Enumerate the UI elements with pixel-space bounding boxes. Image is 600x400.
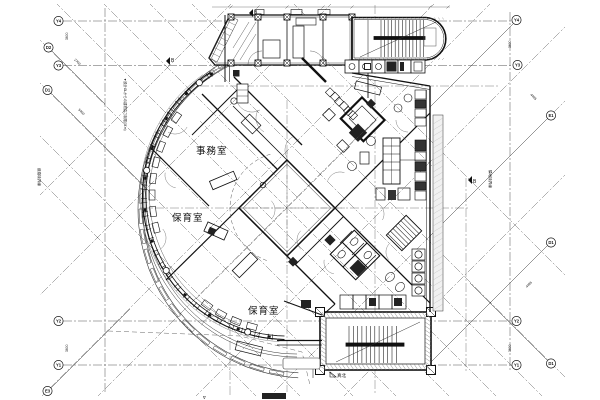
svg-text:保育室: 保育室	[248, 305, 280, 317]
svg-text:3600: 3600	[508, 344, 512, 352]
svg-text:3600: 3600	[508, 40, 512, 48]
svg-text:Y4: Y4	[514, 18, 520, 23]
svg-text:Y3: Y3	[515, 63, 521, 68]
svg-text:D1: D1	[45, 88, 51, 93]
svg-text:Y1: Y1	[514, 363, 520, 368]
svg-text:Y2: Y2	[56, 319, 62, 324]
svg-text:真北: 真北	[337, 372, 346, 379]
svg-text:D2: D2	[46, 45, 52, 50]
svg-text:E1: E1	[548, 113, 554, 118]
svg-text:隣地境界線: 隣地境界線	[488, 170, 493, 188]
svg-text:∇: ∇	[202, 395, 206, 400]
svg-text:Y3: Y3	[56, 63, 62, 68]
svg-text:3600: 3600	[65, 344, 69, 352]
svg-text:Y1: Y1	[56, 363, 62, 368]
svg-text:3600: 3600	[65, 32, 69, 40]
svg-text:道路境界線: 道路境界線	[37, 168, 42, 186]
svg-text:保育室: 保育室	[172, 212, 204, 224]
svg-text:▼設計GLからの建物高さ制限(31m): ▼設計GLからの建物高さ制限(31m)	[123, 78, 128, 131]
svg-text:D1: D1	[548, 240, 554, 245]
svg-text:D1: D1	[548, 361, 554, 366]
svg-text:事務室: 事務室	[196, 145, 228, 157]
svg-text:E3: E3	[45, 389, 51, 394]
svg-text:Y2: Y2	[514, 319, 520, 324]
svg-text:Y4: Y4	[56, 19, 62, 24]
